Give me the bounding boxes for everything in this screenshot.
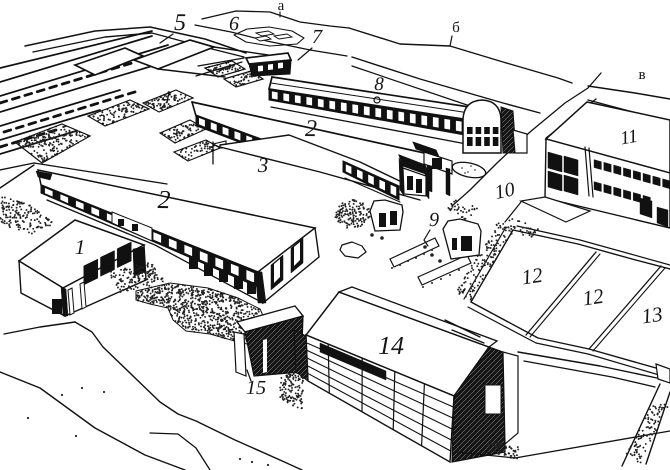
- svg-text:б: б: [452, 20, 460, 36]
- svg-text:9: 9: [429, 209, 439, 231]
- svg-text:2: 2: [157, 185, 170, 214]
- svg-text:11: 11: [619, 126, 640, 150]
- svg-text:1: 1: [75, 235, 86, 259]
- svg-text:14: 14: [378, 331, 404, 360]
- svg-text:12: 12: [520, 263, 545, 290]
- svg-text:6: 6: [229, 13, 239, 35]
- svg-text:3: 3: [257, 153, 269, 177]
- svg-text:2: 2: [305, 116, 317, 142]
- svg-text:в: в: [638, 67, 645, 83]
- svg-text:а: а: [278, 0, 285, 14]
- svg-text:7: 7: [312, 26, 323, 48]
- svg-text:8: 8: [374, 74, 384, 95]
- svg-text:12: 12: [581, 284, 606, 311]
- svg-text:13: 13: [640, 302, 664, 329]
- svg-text:4: 4: [161, 87, 170, 107]
- svg-text:15: 15: [246, 377, 266, 399]
- svg-text:5: 5: [174, 10, 186, 36]
